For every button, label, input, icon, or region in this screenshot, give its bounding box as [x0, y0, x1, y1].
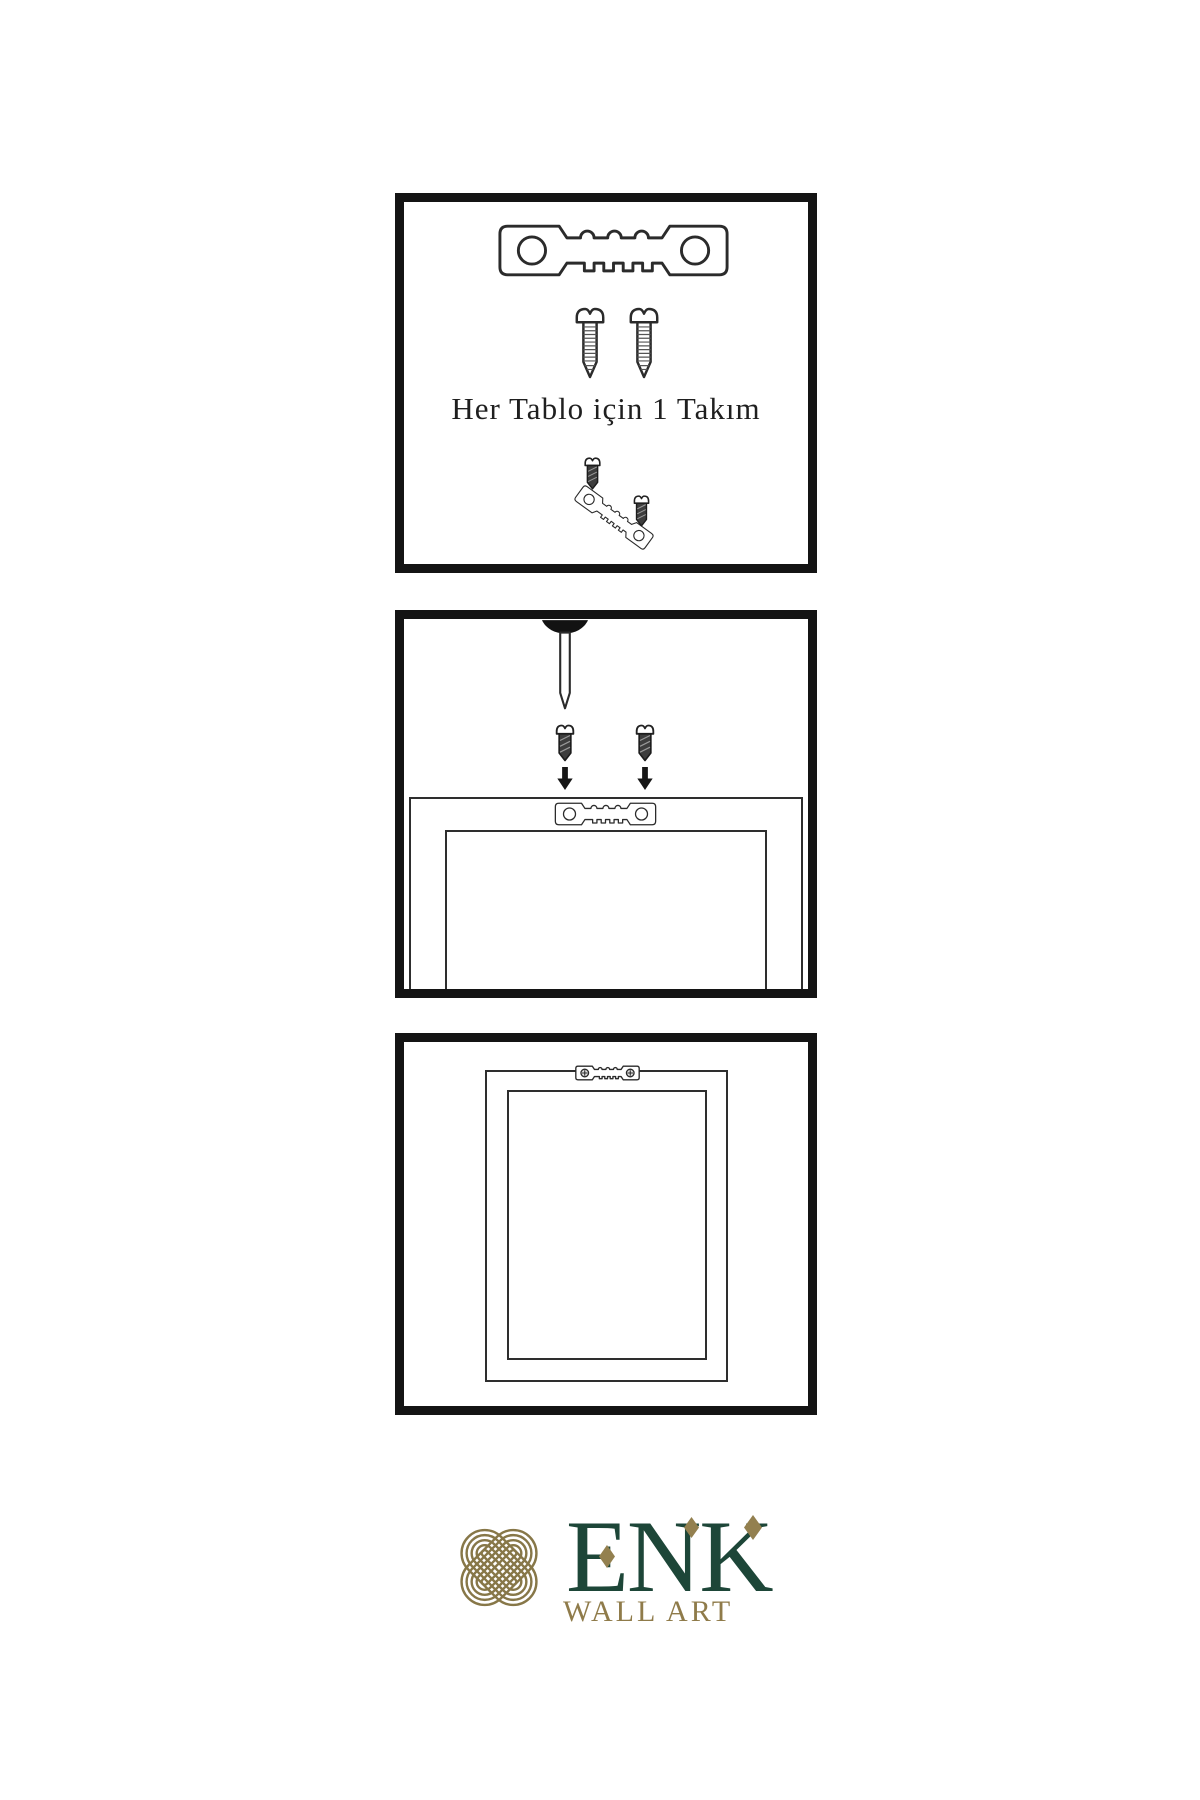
dark-screw-icon: [632, 494, 651, 528]
nail-icon: [542, 619, 588, 719]
screw-icon: [573, 305, 607, 381]
mounted-hanger-with-screws-icon: [575, 1064, 640, 1082]
kit-caption: Her Tablo için 1 Takım: [404, 391, 808, 427]
screw-icon: [627, 305, 661, 381]
dark-screw-icon: [632, 723, 658, 763]
panel-mounting-steps: [395, 610, 817, 998]
sawtooth-hanger-icon: [554, 802, 657, 826]
picture-frame-inner-edge: [507, 1090, 707, 1360]
dark-screw-icon: [552, 723, 578, 763]
brand-tagline: WALL ART: [563, 1597, 733, 1627]
knot-logo-icon: [436, 1502, 562, 1633]
instruction-sheet: Her Tablo için 1 Takım: [0, 0, 1200, 1800]
down-arrow-icon: [637, 767, 653, 790]
frame-back-inner-edge: [445, 830, 767, 997]
sawtooth-hanger-icon: [497, 223, 730, 278]
brand-name: ENK: [566, 1506, 772, 1609]
down-arrow-icon: [557, 767, 573, 790]
panel-hardware-kit: Her Tablo için 1 Takım: [395, 193, 817, 573]
panel-hung-frame: [395, 1033, 817, 1415]
